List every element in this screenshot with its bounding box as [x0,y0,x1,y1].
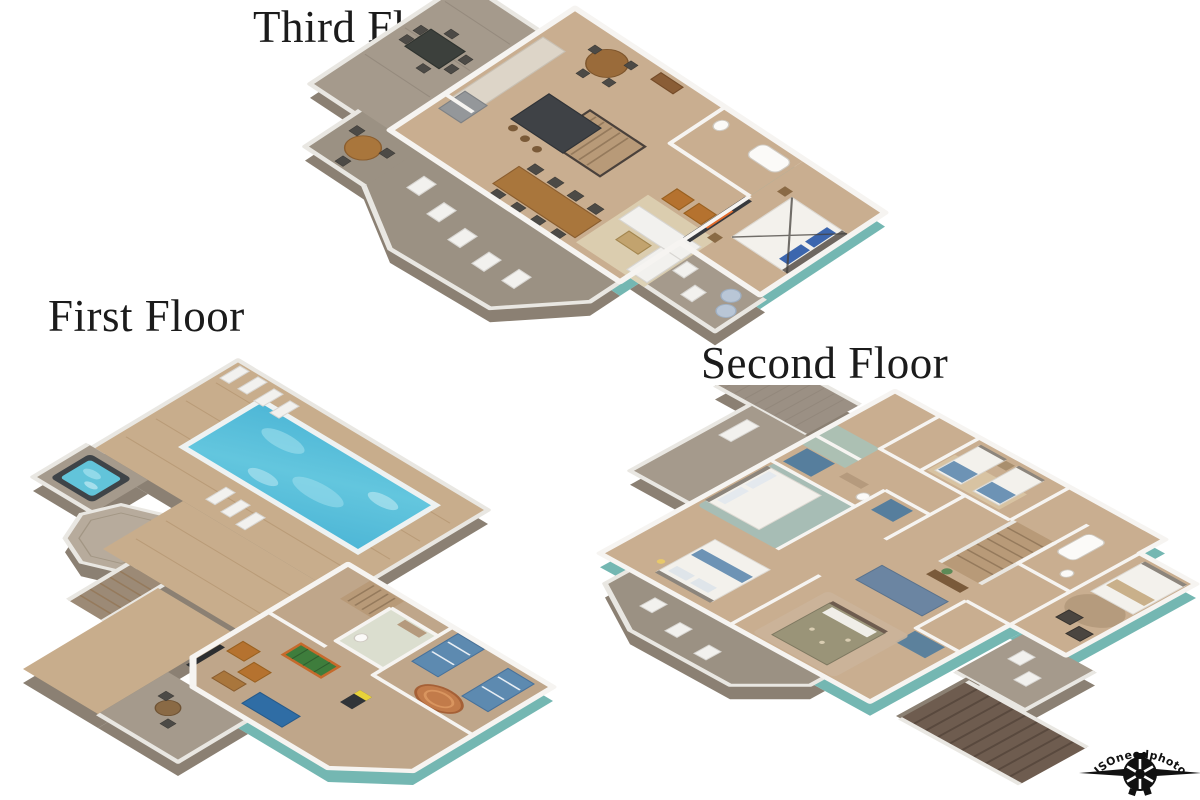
first-floor-plan [20,345,630,800]
floor-plans-collage: Third Floor First Floor Second Floor [0,0,1200,800]
watermark: ISOneedphotos [1075,726,1200,800]
first-floor-label: First Floor [48,293,245,340]
third-floor-plan [295,0,895,400]
